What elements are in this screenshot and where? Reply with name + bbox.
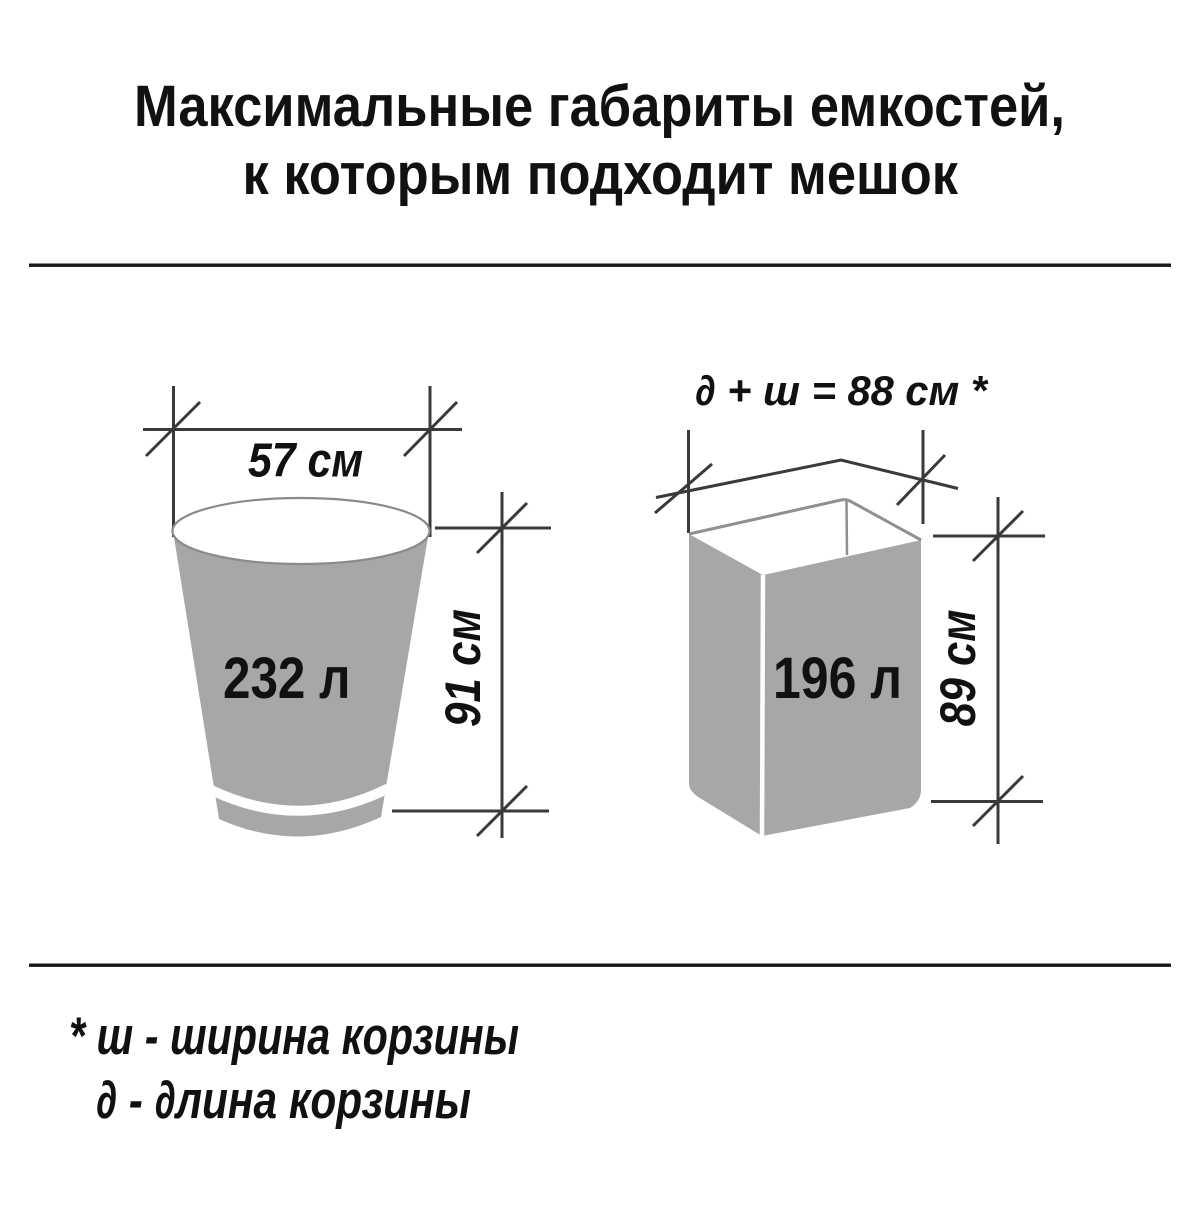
svg-text:к которым подходит мешок: к которым подходит мешок	[243, 142, 959, 207]
svg-text:196 л: 196 л	[773, 646, 902, 711]
svg-text:* ш - ширина корзины: * ш - ширина корзины	[69, 1007, 519, 1066]
svg-text:91 см: 91 см	[435, 609, 491, 727]
svg-text:Максимальные габариты емкостей: Максимальные габариты емкостей,	[134, 74, 1065, 139]
svg-text:232 л: 232 л	[223, 646, 351, 711]
svg-text:57 см: 57 см	[248, 435, 363, 488]
svg-text:∂ + ш = 88 см *: ∂ + ш = 88 см *	[695, 367, 989, 414]
svg-text:∂ - ∂лина корзины: ∂ - ∂лина корзины	[96, 1071, 471, 1130]
svg-text:89 см: 89 см	[930, 609, 986, 726]
